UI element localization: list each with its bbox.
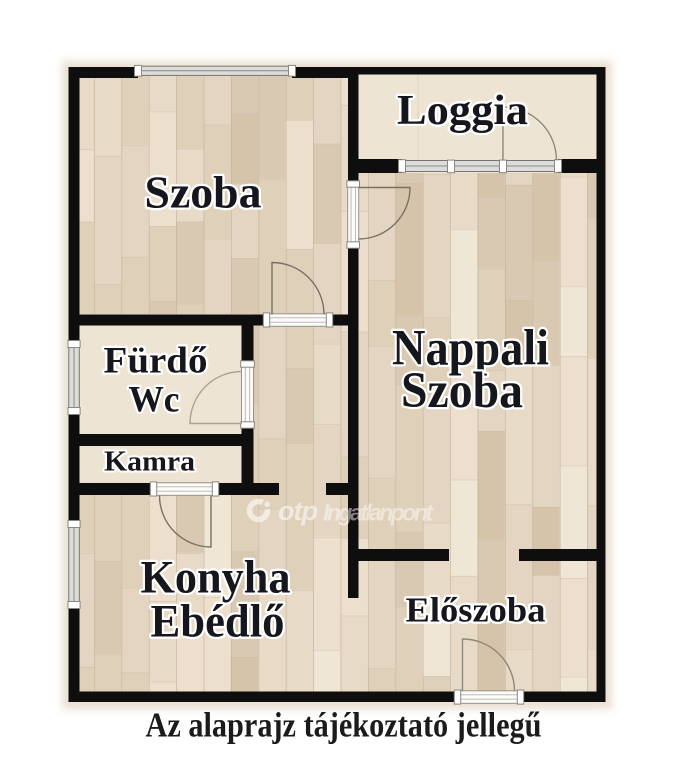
svg-text:Fürdő: Fürdő <box>104 341 208 382</box>
svg-text:Wc: Wc <box>129 380 180 421</box>
svg-text:Kamra: Kamra <box>104 447 195 478</box>
svg-text:Ingatlanpont: Ingatlanpont <box>323 500 434 526</box>
svg-text:otp: otp <box>278 496 318 526</box>
svg-text:Az alaprajz tájékoztató jelleg: Az alaprajz tájékoztató jellegű <box>146 706 542 745</box>
svg-text:Szoba: Szoba <box>401 363 523 419</box>
svg-text:Ebédlő: Ebédlő <box>151 596 285 648</box>
svg-text:Előszoba: Előszoba <box>406 591 546 630</box>
svg-text:Szoba: Szoba <box>145 168 262 218</box>
svg-text:Loggia: Loggia <box>397 88 528 134</box>
